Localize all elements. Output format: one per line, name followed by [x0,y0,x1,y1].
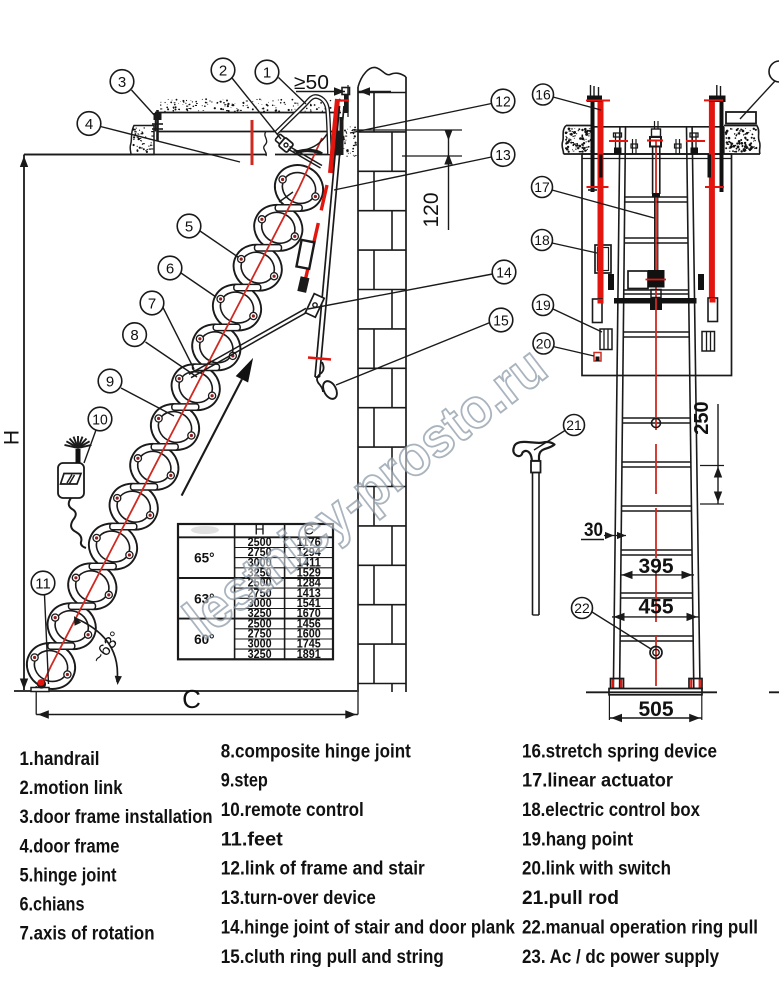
svg-text:9: 9 [106,373,114,390]
svg-text:18.electric control box: 18.electric control box [522,799,700,821]
svg-text:14.hinge joint of stair and do: 14.hinge joint of stair and door plank [221,916,515,938]
svg-text:6.chians: 6.chians [20,894,85,916]
svg-text:5: 5 [185,218,193,235]
svg-text:7.axis of rotation: 7.axis of rotation [20,923,155,945]
svg-text:13: 13 [495,147,511,164]
svg-text:8: 8 [130,327,138,344]
svg-text:8.composite hinge joint: 8.composite hinge joint [221,740,411,762]
svg-text:13.turn-over device: 13.turn-over device [221,887,376,909]
svg-text:12.link of frame and stair: 12.link of frame and stair [221,858,425,880]
svg-text:23. Ac / dc power supply: 23. Ac / dc power supply [522,946,719,968]
svg-text:16: 16 [535,87,551,102]
svg-text:17: 17 [534,180,550,195]
svg-text:3.door frame installation: 3.door frame installation [20,806,213,828]
svg-text:6: 6 [166,260,174,277]
svg-text:7: 7 [148,295,156,312]
svg-text:18: 18 [534,233,550,248]
svg-text:H: H [1,430,24,445]
svg-text:120: 120 [420,192,443,227]
svg-text:19.hang point: 19.hang point [522,828,633,850]
svg-text:505: 505 [638,698,673,721]
svg-text:15.cluth ring pull and string: 15.cluth ring pull and string [221,946,444,968]
svg-text:11.feet: 11.feet [221,828,284,850]
svg-text:4.door frame: 4.door frame [20,835,120,857]
svg-text:22: 22 [574,601,590,616]
svg-text:5.hinge joint: 5.hinge joint [20,864,117,886]
svg-text:2: 2 [219,62,227,79]
svg-text:3250: 3250 [248,649,272,661]
svg-text:250: 250 [691,401,713,434]
svg-text:20: 20 [536,336,552,351]
svg-text:10: 10 [92,411,108,428]
svg-text:1: 1 [263,64,271,81]
svg-text:20.link with switch: 20.link with switch [522,858,671,880]
svg-text:22.manual operation ring pull: 22.manual operation ring pull [522,916,758,938]
svg-text:1891: 1891 [297,649,322,661]
svg-text:17.linear actuator: 17.linear actuator [522,770,673,792]
svg-text:30: 30 [584,520,603,541]
svg-text:C: C [182,684,201,714]
svg-text:3: 3 [118,74,126,91]
svg-text:65°: 65° [194,551,214,566]
svg-text:395: 395 [638,555,673,578]
svg-text:11: 11 [35,575,51,592]
svg-text:9.step: 9.step [221,770,268,792]
svg-text:12: 12 [495,93,511,110]
svg-text:4: 4 [85,116,93,133]
svg-text:455: 455 [638,596,673,619]
svg-text:19: 19 [535,298,551,313]
svg-text:21: 21 [566,418,582,433]
svg-text:1.handrail: 1.handrail [20,748,100,770]
svg-text:2.motion link: 2.motion link [20,777,123,799]
svg-text:15: 15 [493,312,509,329]
svg-text:≥50: ≥50 [294,72,329,94]
svg-text:10.remote control: 10.remote control [221,799,364,821]
svg-text:21.pull rod: 21.pull rod [522,887,619,909]
svg-text:14: 14 [496,264,512,281]
svg-text:16.stretch spring device: 16.stretch spring device [522,740,717,762]
